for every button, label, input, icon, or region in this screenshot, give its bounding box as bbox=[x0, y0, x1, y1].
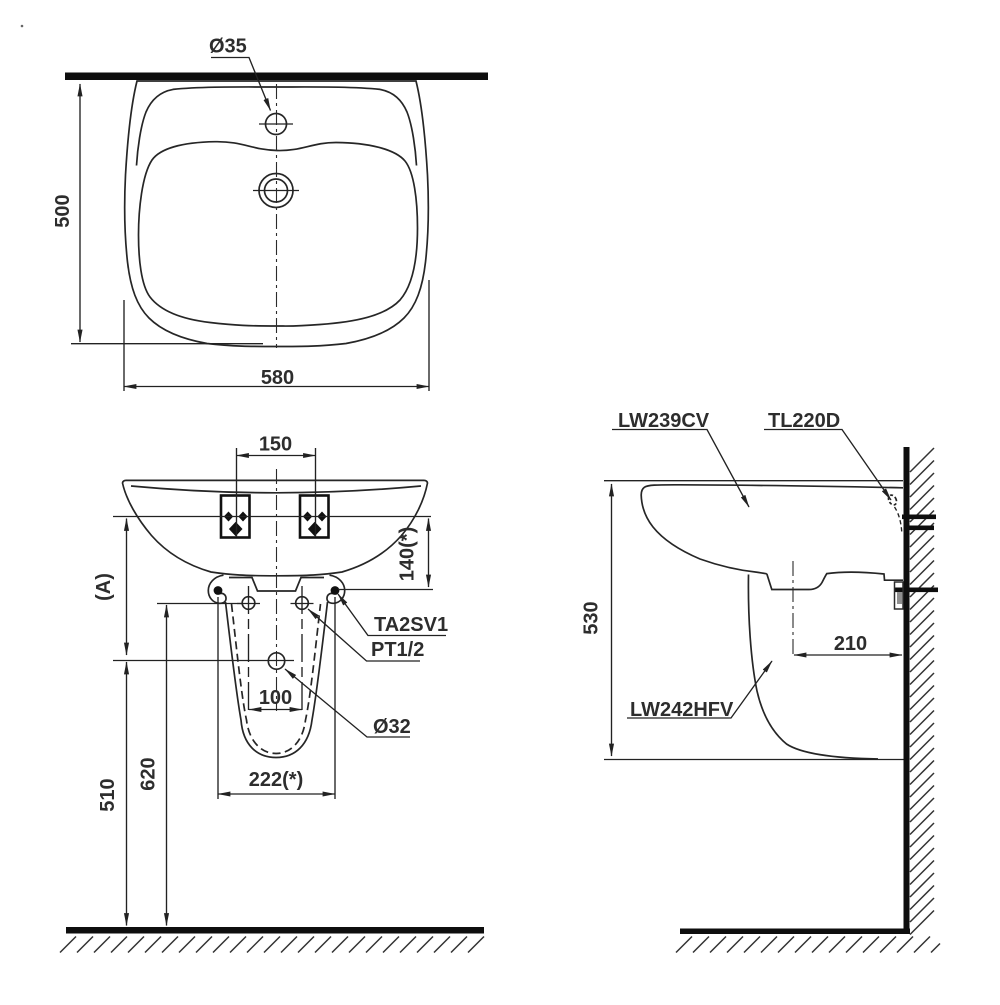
svg-text:222(*): 222(*) bbox=[249, 769, 303, 791]
svg-text:100: 100 bbox=[259, 687, 292, 709]
svg-text:PT1/2: PT1/2 bbox=[371, 639, 424, 661]
svg-text:LW239CV: LW239CV bbox=[618, 410, 710, 432]
svg-text:Ø32: Ø32 bbox=[373, 716, 411, 738]
svg-text:500: 500 bbox=[52, 194, 74, 227]
svg-text:(A): (A) bbox=[93, 573, 115, 601]
svg-text:620: 620 bbox=[138, 757, 160, 790]
svg-text:140(*): 140(*) bbox=[397, 527, 419, 581]
svg-text:TL220D: TL220D bbox=[768, 410, 840, 432]
svg-text:150: 150 bbox=[259, 434, 292, 456]
svg-text:210: 210 bbox=[834, 633, 867, 655]
svg-text:TA2SV1: TA2SV1 bbox=[374, 614, 448, 636]
svg-text:Ø35: Ø35 bbox=[209, 36, 247, 58]
svg-text:530: 530 bbox=[581, 601, 603, 634]
svg-text:580: 580 bbox=[261, 367, 294, 389]
svg-text:510: 510 bbox=[97, 778, 119, 811]
